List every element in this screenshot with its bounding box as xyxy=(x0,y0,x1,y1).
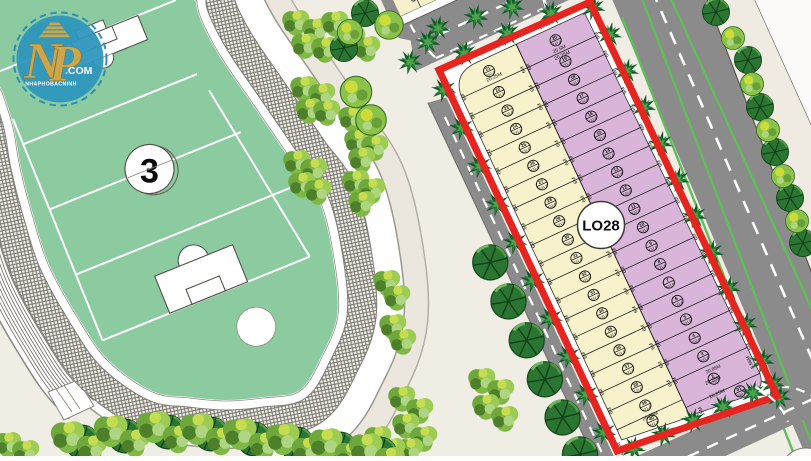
svg-text:.COM: .COM xyxy=(65,65,93,77)
svg-text:LO28: LO28 xyxy=(582,218,620,235)
svg-text:NHAPHOBACNINH: NHAPHOBACNINH xyxy=(25,82,77,88)
